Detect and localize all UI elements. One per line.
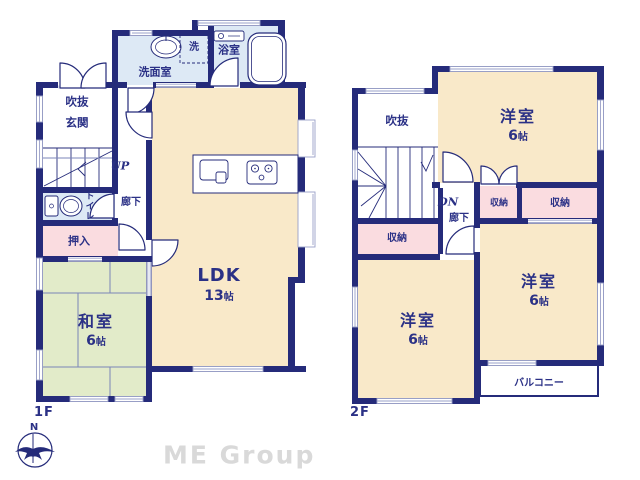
label-hall-2f: 廊下 xyxy=(449,214,469,224)
label-void-2f: 吹抜 xyxy=(386,115,409,127)
label-stairs-dn: DN xyxy=(438,196,458,208)
label-closet-small: 収納 xyxy=(490,200,508,209)
label-closet-hall: 収納 xyxy=(387,234,407,244)
label-closet-wide: 収納 xyxy=(550,199,570,209)
hall-1f xyxy=(118,88,152,262)
label-room-southwest: 洋室 6帖 xyxy=(400,313,436,347)
label-oshiire: 押入 xyxy=(68,236,90,247)
compass-north-label: N xyxy=(30,423,38,433)
floor-label-1f: 1F xyxy=(34,406,54,419)
room-toilet xyxy=(43,193,115,220)
label-laundry: 洗 xyxy=(189,43,199,53)
room-ldk xyxy=(152,88,302,281)
label-room-southeast: 洋室 6帖 xyxy=(521,274,557,308)
stairs-2f-area xyxy=(358,148,438,219)
label-void-1f: 吹抜 xyxy=(66,96,89,108)
floor-label-2f: 2F xyxy=(350,406,370,419)
floorplan-canvas: 洗面室 洗 浴室 吹抜 玄関 UP トイレ 廊下 押入 和室 6帖 LDK 13… xyxy=(0,0,640,480)
label-washroom: 洗面室 xyxy=(139,67,172,78)
label-washitsu: 和室 6帖 xyxy=(78,314,114,348)
label-room-north: 洋室 6帖 xyxy=(500,109,536,143)
label-stairs-up: UP xyxy=(111,160,130,172)
label-entrance: 玄関 xyxy=(66,117,89,129)
label-balcony: バルコニー xyxy=(514,379,564,389)
label-toilet: トイレ xyxy=(84,191,93,221)
compass-icon xyxy=(15,433,55,467)
label-hall-1f: 廊下 xyxy=(121,198,141,208)
watermark-logo-text: ME Group xyxy=(163,441,315,470)
label-bath: 浴室 xyxy=(218,45,240,56)
label-ldk: LDK 13帖 xyxy=(197,267,240,303)
